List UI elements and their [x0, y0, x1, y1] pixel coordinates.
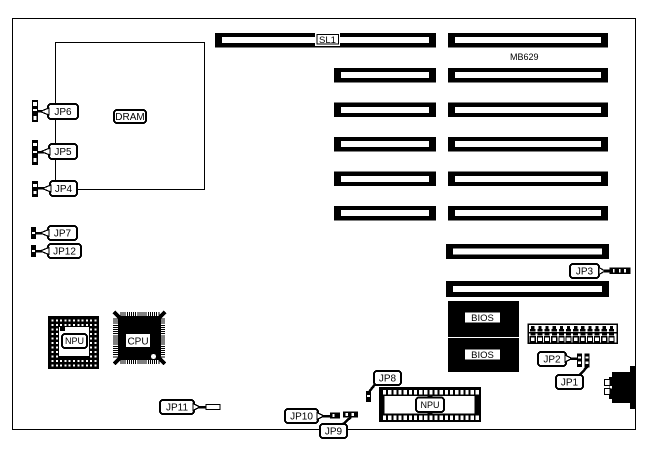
svg-text:DRAM: DRAM [115, 112, 144, 123]
svg-text:MB629: MB629 [510, 52, 539, 62]
svg-text:JP6: JP6 [54, 107, 72, 118]
svg-text:BIOS: BIOS [471, 350, 494, 361]
svg-text:JP9: JP9 [325, 427, 343, 438]
svg-text:NPU: NPU [420, 400, 439, 410]
svg-text:JP12: JP12 [53, 247, 76, 258]
svg-text:JP11: JP11 [166, 403, 188, 414]
svg-text:BIOS: BIOS [471, 313, 494, 324]
svg-text:SL1: SL1 [319, 35, 336, 46]
svg-text:JP8: JP8 [379, 374, 397, 385]
svg-text:JP5: JP5 [54, 147, 72, 158]
svg-text:JP2: JP2 [543, 355, 561, 366]
svg-text:JP10: JP10 [290, 412, 313, 423]
svg-text:NPU: NPU [65, 336, 84, 346]
svg-text:CPU: CPU [127, 337, 148, 348]
svg-text:JP4: JP4 [55, 184, 73, 195]
svg-text:JP1: JP1 [561, 378, 579, 389]
svg-text:JP7: JP7 [54, 229, 72, 240]
svg-text:JP3: JP3 [576, 267, 594, 278]
